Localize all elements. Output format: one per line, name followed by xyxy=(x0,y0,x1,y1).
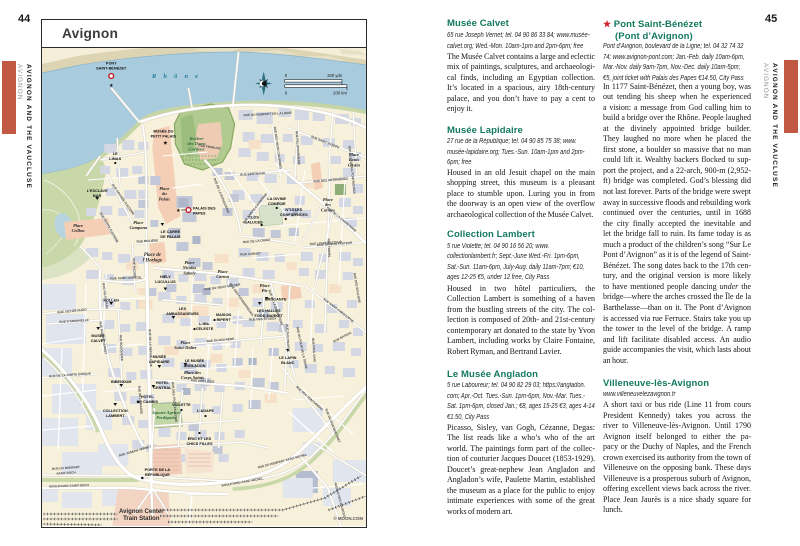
svg-text:★: ★ xyxy=(176,208,181,214)
svg-text:CENTRAL: CENTRAL xyxy=(153,386,172,390)
svg-text:LA DIVINE: LA DIVINE xyxy=(267,197,286,201)
svg-text:LE CARRÉ: LE CARRÉ xyxy=(161,229,181,234)
svg-text:PORTE DE LA: PORTE DE LA xyxy=(145,468,171,472)
svg-text:MUSÉE: MUSÉE xyxy=(153,354,167,359)
svg-text:Palais: Palais xyxy=(159,196,171,201)
svg-text:SAINT-BÉNÉZET: SAINT-BÉNÉZET xyxy=(96,66,127,71)
svg-text:LUCULLUS: LUCULLUS xyxy=(155,280,176,284)
svg-text:Saboly: Saboly xyxy=(183,270,195,275)
svg-text:ÉRIC ET LES: ÉRIC ET LES xyxy=(188,436,212,441)
svg-text:Train Station: Train Station xyxy=(123,516,160,522)
svg-text:★: ★ xyxy=(109,83,114,89)
svg-text:Saint-Didier: Saint-Didier xyxy=(174,345,197,350)
svg-text:L'ESCLAVE: L'ESCLAVE xyxy=(87,189,108,193)
svg-text:MUSÉE DU: MUSÉE DU xyxy=(153,129,173,134)
svg-text:Avignon Center: Avignon Center xyxy=(119,509,164,515)
svg-text:200 yds: 200 yds xyxy=(327,73,342,78)
svg-text:RÉPUBLIQUE: RÉPUBLIQUE xyxy=(145,472,170,477)
svg-text:© MOON.COM: © MOON.COM xyxy=(333,516,363,521)
svg-text:RIPERT: RIPERT xyxy=(217,318,232,322)
svg-text:AMBASSADEURS: AMBASSADEURS xyxy=(166,312,199,316)
svg-text:PETIT PALAIS: PETIT PALAIS xyxy=(151,135,177,139)
svg-text:PAPES: PAPES xyxy=(193,212,206,216)
svg-text:HIÉLY: HIÉLY xyxy=(160,274,171,279)
svg-text:R h ô n e: R h ô n e xyxy=(151,73,201,80)
svg-text:CÉLESTE: CÉLESTE xyxy=(196,326,214,331)
svg-text:L'ŒIL: L'ŒIL xyxy=(199,322,210,326)
svg-text:LES: LES xyxy=(179,307,187,311)
svg-text:CONFIDENCES: CONFIDENCES xyxy=(280,213,308,217)
svg-text:Pie: Pie xyxy=(262,288,268,293)
svg-text:200 km: 200 km xyxy=(333,91,347,96)
svg-text:DE PALAIS: DE PALAIS xyxy=(160,235,180,239)
svg-text:Nº15 LES: Nº15 LES xyxy=(285,208,302,212)
svg-text:PONT: PONT xyxy=(106,62,117,66)
svg-text:HOTEL: HOTEL xyxy=(156,381,170,385)
svg-text:LAMBERT: LAMBERT xyxy=(106,414,125,418)
svg-text:Campana: Campana xyxy=(129,225,147,230)
svg-text:COLLECTION: COLLECTION xyxy=(103,409,128,413)
svg-text:PALAIS DES: PALAIS DES xyxy=(193,207,216,211)
svg-text:Crillon: Crillon xyxy=(72,228,86,233)
svg-text:MAISON: MAISON xyxy=(216,313,231,317)
svg-text:LE MUSÉE: LE MUSÉE xyxy=(185,358,205,363)
svg-text:COMÉDIE: COMÉDIE xyxy=(268,201,286,206)
svg-text:LIMAS: LIMAS xyxy=(109,157,121,161)
svg-text:BLANC: BLANC xyxy=(281,361,295,365)
svg-text:L'AGAPE: L'AGAPE xyxy=(197,409,214,413)
svg-text:LE: LE xyxy=(113,152,118,156)
svg-text:l'Horloge: l'Horloge xyxy=(143,259,163,264)
svg-text:ANGLADON: ANGLADON xyxy=(183,364,205,368)
svg-text:LE LAPIN: LE LAPIN xyxy=(279,356,297,360)
svg-text:★: ★ xyxy=(163,141,168,147)
svg-text:Place de: Place de xyxy=(144,253,162,258)
svg-text:Carnot: Carnot xyxy=(216,274,229,279)
svg-text:CHICS FILLES: CHICS FILLES xyxy=(186,442,212,446)
svg-text:BIBENDUM: BIBENDUM xyxy=(111,380,132,384)
